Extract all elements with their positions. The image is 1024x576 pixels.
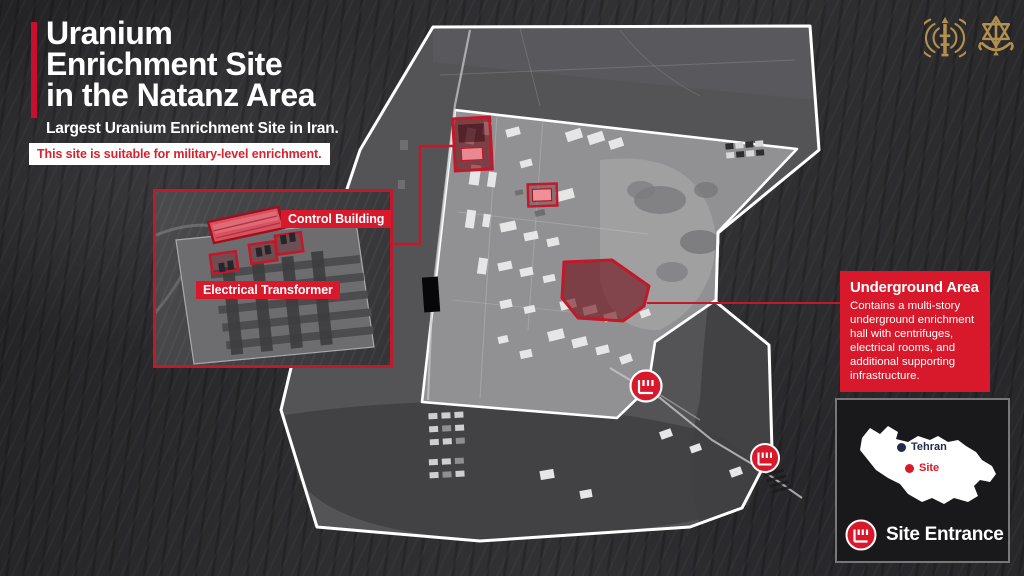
control-building-inset: Control Building Electrical Transformer: [153, 189, 393, 368]
subtitle: Largest Uranium Enrichment Site in Iran.: [46, 120, 339, 138]
control-building-label: Control Building: [281, 210, 391, 228]
site-entrance-label: Site Entrance: [886, 524, 1004, 546]
site-entrance-marker-2: [751, 444, 779, 472]
title-line-3: in the Natanz Area: [46, 80, 315, 111]
highlight-building: [528, 183, 558, 206]
logos: [924, 12, 1018, 64]
underground-area-title: Underground Area: [850, 279, 981, 296]
site-entrance-marker-1: [631, 371, 662, 402]
infographic-canvas: Uranium Enrichment Site in the Natanz Ar…: [0, 0, 1024, 576]
underground-area-callout: Underground Area Contains a multi-story …: [840, 271, 990, 392]
tehran-marker: Tehran: [897, 441, 947, 453]
signal-corps-emblem-icon: [924, 12, 966, 64]
title-line-2: Enrichment Site: [46, 49, 315, 80]
iran-locator-box: Tehran Site Site Entrance: [835, 398, 1010, 563]
electrical-transformer-label: Electrical Transformer: [196, 281, 340, 299]
site-entrance-legend-icon: [845, 519, 877, 551]
military-enrichment-banner: This site is suitable for military-level…: [29, 143, 330, 165]
site-marker: Site: [905, 462, 939, 474]
tehran-label: Tehran: [911, 441, 947, 453]
site-dot-icon: [905, 464, 914, 473]
title-line-1: Uranium: [46, 18, 315, 49]
site-label: Site: [919, 462, 939, 474]
idf-emblem-icon: [974, 12, 1018, 64]
title-accent-bar: [31, 22, 37, 118]
tehran-dot-icon: [897, 443, 906, 452]
highlight-control-area: [453, 117, 493, 171]
site-entrance-legend: Site Entrance: [845, 519, 1004, 551]
underground-area-description: Contains a multi-story underground enric…: [850, 300, 981, 383]
page-title: Uranium Enrichment Site in the Natanz Ar…: [46, 18, 315, 111]
blacked-out-area: [422, 276, 440, 312]
